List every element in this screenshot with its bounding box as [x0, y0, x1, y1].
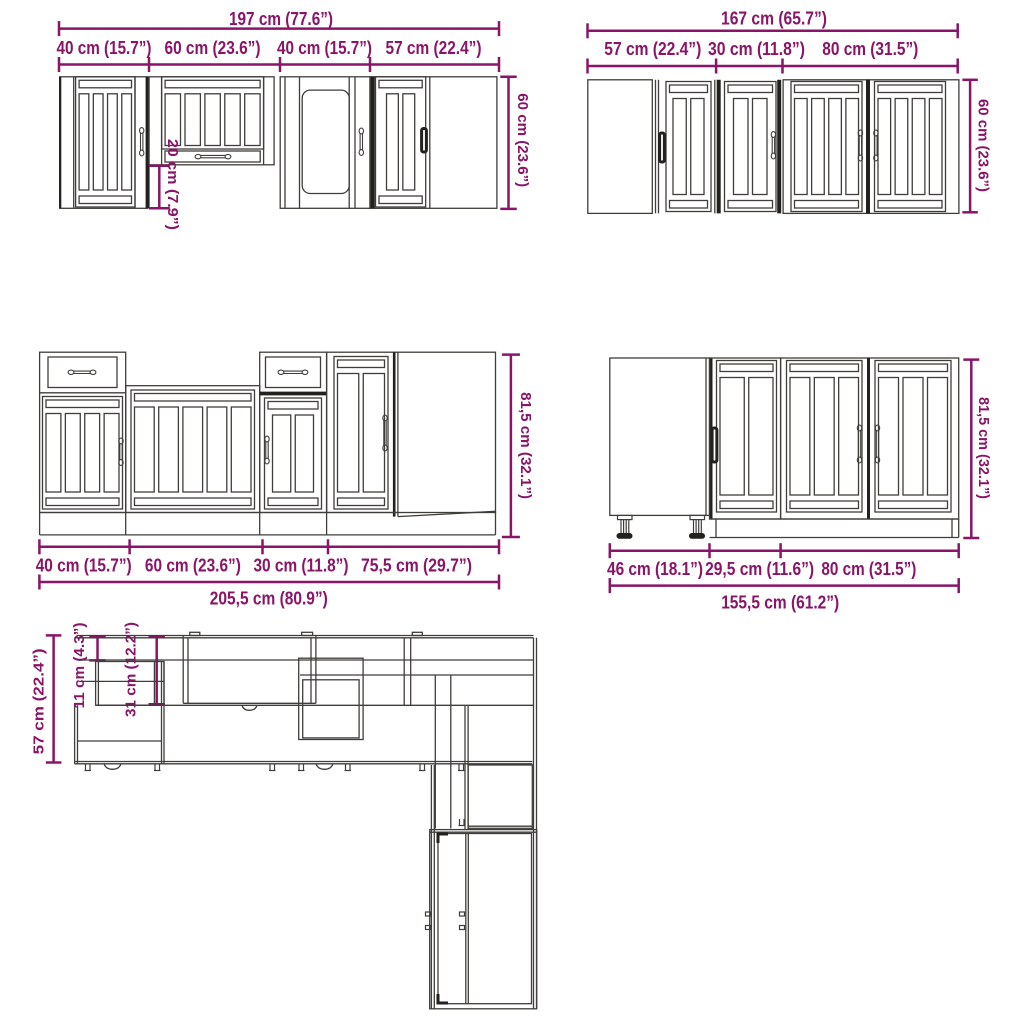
- svg-text:167 cm (65.7”): 167 cm (65.7”): [721, 7, 827, 28]
- svg-text:81,5 cm (32.1”): 81,5 cm (32.1”): [975, 397, 992, 499]
- svg-text:31 cm (12.2”): 31 cm (12.2”): [123, 622, 140, 717]
- svg-text:40 cm (15.7”): 40 cm (15.7”): [57, 37, 152, 58]
- svg-text:60 cm (23.6”): 60 cm (23.6”): [145, 554, 241, 575]
- svg-text:80 cm (31.5”): 80 cm (31.5”): [822, 38, 918, 59]
- svg-text:60 cm (23.6”): 60 cm (23.6”): [514, 93, 531, 187]
- svg-text:60 cm (23.6”): 60 cm (23.6”): [165, 37, 261, 58]
- svg-text:57 cm (22.4”): 57 cm (22.4”): [604, 38, 701, 59]
- svg-text:155,5 cm (61.2”): 155,5 cm (61.2”): [721, 592, 839, 613]
- svg-text:40 cm (15.7”): 40 cm (15.7”): [36, 554, 132, 575]
- svg-text:81,5 cm (32.1”): 81,5 cm (32.1”): [517, 392, 534, 499]
- svg-text:75,5 cm (29.7”): 75,5 cm (29.7”): [361, 554, 472, 575]
- svg-text:30 cm (11.8”): 30 cm (11.8”): [254, 554, 349, 575]
- svg-text:20 cm (7.9”): 20 cm (7.9”): [164, 139, 181, 230]
- svg-text:197 cm (77.6”): 197 cm (77.6”): [229, 8, 333, 29]
- svg-text:57 cm (22.4”): 57 cm (22.4”): [31, 648, 48, 754]
- svg-text:46 cm (18.1”): 46 cm (18.1”): [607, 558, 703, 579]
- svg-text:205,5 cm (80.9”): 205,5 cm (80.9”): [210, 588, 328, 609]
- svg-text:60 cm (23.6”): 60 cm (23.6”): [975, 99, 992, 192]
- svg-text:80 cm (31.5”): 80 cm (31.5”): [821, 558, 916, 579]
- svg-text:40 cm (15.7”): 40 cm (15.7”): [277, 37, 372, 58]
- svg-text:29,5 cm (11.6”): 29,5 cm (11.6”): [705, 558, 814, 579]
- svg-text:57 cm (22.4”): 57 cm (22.4”): [386, 37, 482, 58]
- svg-text:30 cm (11.8”): 30 cm (11.8”): [708, 38, 805, 59]
